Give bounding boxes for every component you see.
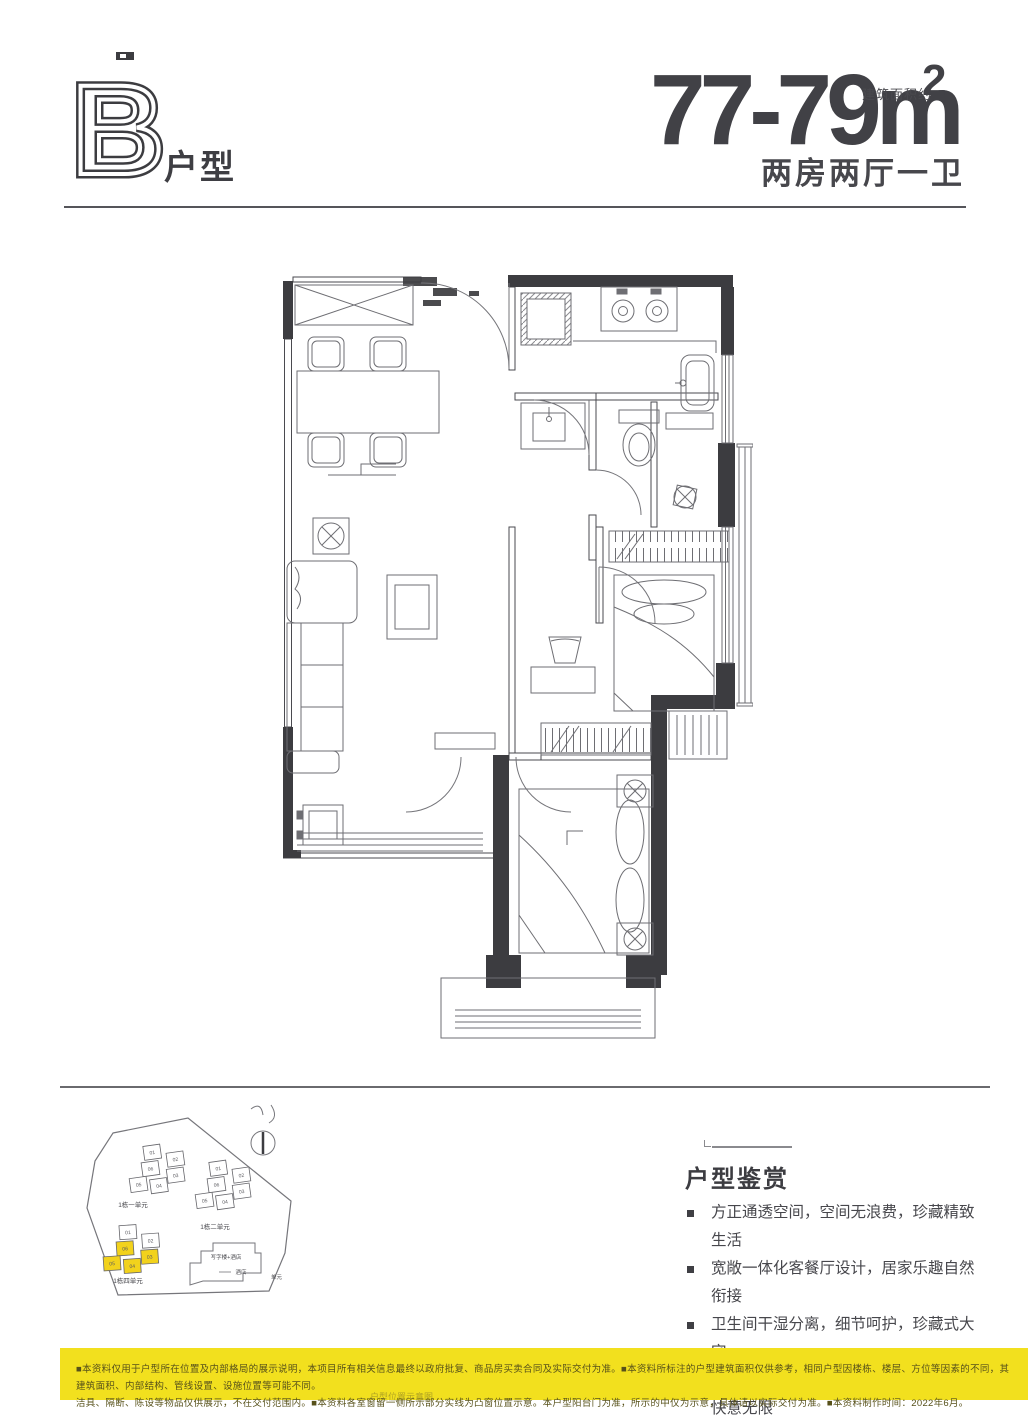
dining-set [297,337,439,467]
ac-unit [313,518,349,554]
compass-icon [251,1105,275,1155]
bed-2 [519,789,649,953]
office-hotel-outline [190,1243,261,1285]
hotel-label: 酒店 [235,1268,247,1276]
vanity-basin [521,403,585,449]
unit-label: 02 [148,1238,154,1244]
unit-label: 03 [147,1254,153,1260]
unit-label: 06 [122,1246,128,1252]
pillow [616,868,644,932]
unit-type-label: 户型 [164,140,236,189]
brochure-page: { "header": { "unit_letter": "B", "unit_… [0,0,1032,1400]
room-config-subtitle: 两房两厅一卫 [640,148,965,193]
watermark-text: 户型位置示意图 [370,1390,433,1403]
bullet-text: 宽敞一体化客餐厅设计，居家乐趣自然衔接 [711,1260,975,1305]
kitchen [521,287,716,411]
cluster4-label: 1栋四单元 [113,1276,143,1285]
unit-label: 03 [239,1189,246,1196]
wardrobe-1 [609,531,729,562]
unit-label: 01 [149,1150,156,1157]
desk-stool [531,637,595,693]
coffee-table [387,575,437,639]
decorative-tick [704,1140,711,1147]
stove [601,287,677,331]
bathroom [521,403,713,509]
unit-label: 03 [173,1173,180,1180]
living-dining [287,285,495,845]
scan-artifact [403,277,479,306]
disclaimer-bar: ■本资料仅用于户型所在位置及内部格局的展示说明，本项目所有相关信息最终以政府批复… [60,1348,1028,1400]
unit-label: 06 [147,1166,154,1173]
shower-drain [673,485,697,509]
sofa [287,561,357,773]
unit-letter-inner: B [72,59,164,192]
disclaimer-line-1: ■本资料仅用于户型所在位置及内部格局的展示说明，本项目所有相关信息最终以政府批复… [76,1361,1014,1395]
area-superscript: 2 [922,56,946,106]
building-cluster-2: 01 02 03 04 05 06 [191,1157,254,1212]
pillow [634,604,694,624]
wardrobe-2 [541,723,651,755]
appreciation-title: 户型鉴赏 [685,1159,789,1194]
floor-plan [283,275,753,1060]
counter-edge [573,341,716,353]
media-cabinet [435,733,495,749]
unit-letter-badge: B B [68,52,168,192]
unit-label: 01 [215,1166,222,1173]
scan-artifact [120,54,126,58]
section-divider [60,1086,990,1088]
unit-label: 02 [172,1157,179,1164]
tv-console [328,464,396,475]
unit-letter-b: B B [68,52,168,192]
appreciation-bullet: 宽敞一体化客餐厅设计，居家乐趣自然衔接 [685,1255,980,1311]
unit-label: 04 [156,1183,163,1190]
office-label: 写字楼+酒店 [211,1253,242,1261]
building-cluster-4: 01 02 03 04 05 06 [101,1223,161,1275]
bath-shelf [666,413,713,429]
bedroom-1 [531,531,729,711]
unit-label: 01 [125,1230,131,1236]
unit-label: 04 [129,1264,135,1270]
pillow [616,800,644,864]
pillow [622,580,706,604]
site-plan: 01 02 03 04 05 06 1栋一单元 01 02 03 04 05 0… [73,1103,335,1335]
disclaimer-line-2: 洁具、隔断、陈设等物品仅供展示，不在交付范围内。■本资料各室窗留一侧所示部分实线… [76,1395,1014,1412]
unit-label: 05 [136,1182,143,1189]
unit-label: 05 [109,1261,115,1267]
kitchen-sink [675,355,714,411]
bed-1 [614,575,714,711]
cluster2-label: 1栋二单元 [200,1222,230,1231]
area-range: 77-79m [650,60,959,160]
building-cluster-1: 01 02 03 04 05 06 [125,1141,188,1196]
unit-side-label: 单元 [271,1273,283,1281]
dining-table [297,371,439,433]
unit-label: 04 [222,1199,229,1206]
unit-label: 02 [238,1173,245,1180]
unit-label: 06 [213,1182,220,1189]
header-divider [64,206,966,208]
appreciation-bullet: 方正通透空间，空间无浪费，珍藏精致生活 [685,1199,980,1255]
decorative-line [712,1146,792,1148]
unit-label: 05 [202,1198,209,1205]
cluster1-label: 1栋一单元 [118,1200,148,1209]
bullet-text: 方正通透空间，空间无浪费，珍藏精致生活 [711,1204,975,1249]
